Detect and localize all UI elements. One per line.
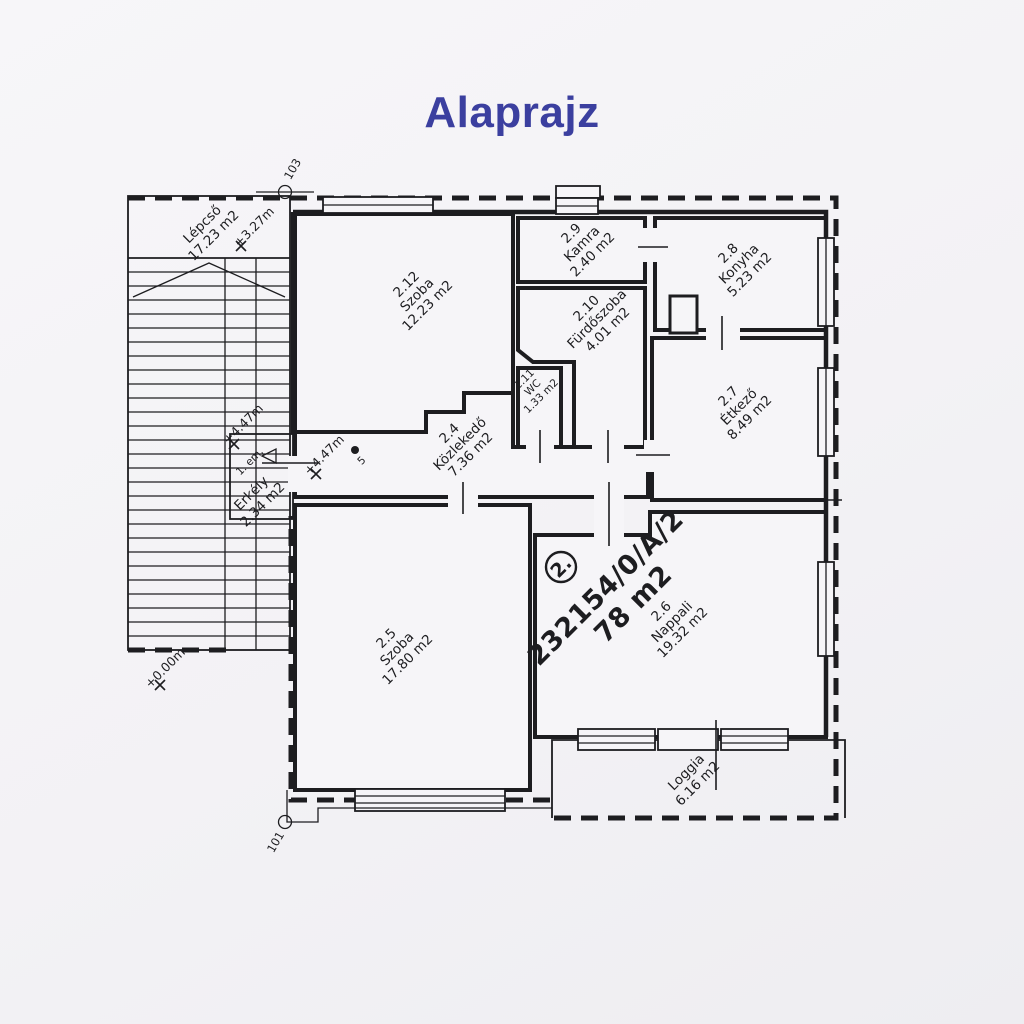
chimney-top [556, 186, 600, 198]
floorplan-drawing: 103 101 +3.27m +4.47m +4.47m +0.00m 1. e… [0, 0, 1024, 1024]
stair-direction-arrow [133, 263, 285, 297]
marker-101-label: 101 [264, 829, 287, 855]
staircase [128, 196, 290, 650]
window-loggia-right [721, 729, 788, 750]
staircase-outline [128, 196, 290, 650]
label-lepcso: Lépcső 17.23 m2 [174, 196, 242, 264]
label-erkely: Erkély 2.34 m2 [226, 468, 288, 530]
label-loggia: Loggia 6.16 m2 [661, 747, 723, 809]
floorplan-photo: Alaprajz [0, 0, 1024, 1024]
elevation-stair-top: +3.27m [231, 204, 277, 250]
marker-103-label: 103 [281, 156, 304, 182]
shaft-outline [670, 296, 697, 333]
marker-103: 103 [256, 156, 314, 199]
window-loggia-left [578, 729, 655, 750]
floor-note-label: 1. em. [234, 446, 266, 478]
floor-note: 1. em. [234, 446, 276, 478]
door-loggia [658, 729, 718, 750]
survey-point-dot [351, 446, 359, 454]
